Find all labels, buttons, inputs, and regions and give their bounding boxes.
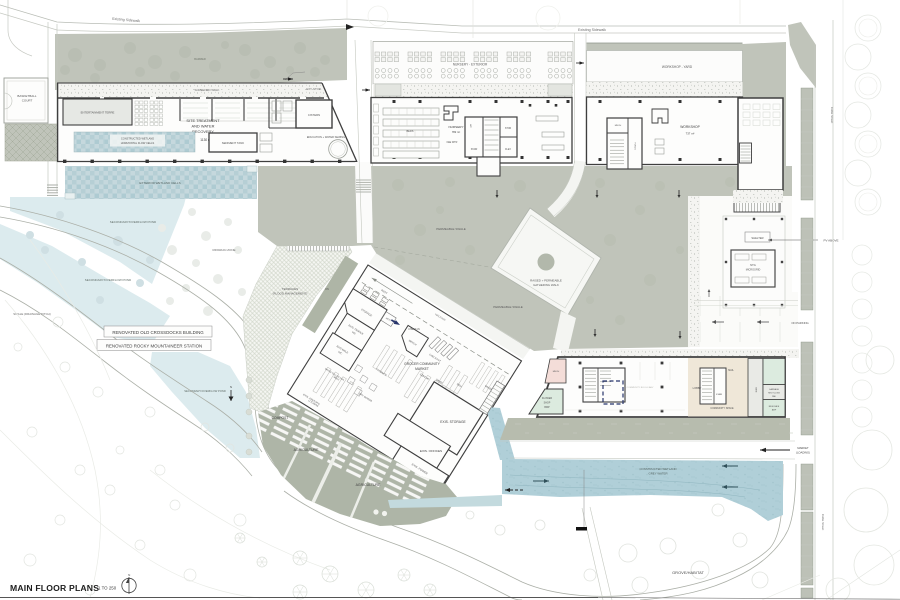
svg-text:STOR: STOR xyxy=(505,128,512,130)
svg-text:EXIS. STORAGE: EXIS. STORAGE xyxy=(440,420,466,424)
svg-text:PV ABOVE: PV ABOVE xyxy=(823,239,838,243)
svg-text:NURSERY: NURSERY xyxy=(448,125,463,129)
svg-text:MAIN FLOOR PLANS: MAIN FLOOR PLANS xyxy=(10,583,99,593)
svg-text:SECONDARY/OVERFLOW POND: SECONDARY/OVERFLOW POND xyxy=(85,278,132,282)
svg-text:Collie Street: Collie Street xyxy=(821,514,825,531)
svg-text:MICROGRID: MICROGRID xyxy=(746,269,761,272)
svg-text:GREY WATER: GREY WATER xyxy=(648,472,667,476)
svg-text:SECONDARY/OVERFLOW POND: SECONDARY/OVERFLOW POND xyxy=(110,220,157,224)
svg-text:ON PARKING: ON PARKING xyxy=(791,321,808,325)
svg-text:N: N xyxy=(128,573,130,577)
svg-text:NURSERY - EXTERIOR: NURSERY - EXTERIOR xyxy=(453,63,488,67)
svg-text:COMMUNITY BLDG 6 ABV: COMMUNITY BLDG 6 ABV xyxy=(627,386,654,389)
svg-text:MTG: MTG xyxy=(750,264,756,267)
svg-text:SWALE (DRAINAGE DITCH): SWALE (DRAINAGE DITCH) xyxy=(13,312,51,316)
svg-text:MARKET: MARKET xyxy=(797,446,809,450)
svg-text:RIPARIAN ZONE: RIPARIAN ZONE xyxy=(212,248,235,252)
svg-text:STAIR: STAIR xyxy=(716,393,723,396)
svg-text:MAIL: MAIL xyxy=(728,369,734,372)
svg-text:WC: WC xyxy=(469,124,471,128)
svg-text:EXT. STOR.: EXT. STOR. xyxy=(306,87,321,91)
svg-text:RENOVATED OLD CROSSDOCKS BUILD: RENOVATED OLD CROSSDOCKS BUILDING xyxy=(112,330,204,335)
svg-text:FLEX: FLEX xyxy=(505,149,511,151)
svg-text:Existing Sidewalk: Existing Sidewalk xyxy=(578,28,606,32)
svg-text:PERMEABLE SWALE: PERMEABLE SWALE xyxy=(436,227,466,231)
svg-text:SHELTER: SHELTER xyxy=(751,236,763,240)
svg-text:LOBBY: LOBBY xyxy=(693,386,702,390)
svg-text:MECH: MECH xyxy=(553,371,560,373)
svg-text:FEE WTR: FEE WTR xyxy=(447,141,458,144)
svg-text:DN: DN xyxy=(325,288,329,291)
svg-text:SITE TREATMENT: SITE TREATMENT xyxy=(186,118,220,123)
svg-text:TOOLS: TOOLS xyxy=(634,142,636,150)
svg-text:EXIS. OFFICES: EXIS. OFFICES xyxy=(420,449,442,453)
svg-text:PERMEABLE SWALE: PERMEABLE SWALE xyxy=(493,305,523,309)
svg-text:1 TO 250: 1 TO 250 xyxy=(98,586,117,591)
svg-text:SCREENED WALK: SCREENED WALK xyxy=(195,88,220,92)
svg-text:PAD: PAD xyxy=(772,395,777,398)
svg-text:N: N xyxy=(230,386,232,389)
svg-text:GATHERING WALK: GATHERING WALK xyxy=(533,283,559,287)
svg-text:BIKE: BIKE xyxy=(755,388,757,394)
svg-text:CONSTRUCTED WETLAND: CONSTRUCTED WETLAND xyxy=(121,137,154,141)
svg-text:737 m²: 737 m² xyxy=(686,132,695,136)
svg-text:HORIZONTAL FLOW CELLS: HORIZONTAL FLOW CELLS xyxy=(121,141,155,145)
svg-text:Collie Street: Collie Street xyxy=(830,107,834,124)
svg-text:(FLOOD MANAGEMENT): (FLOOD MANAGEMENT) xyxy=(273,292,308,296)
svg-text:BMP: BMP xyxy=(544,406,550,409)
svg-text:AGRICULTURE: AGRICULTURE xyxy=(356,483,381,487)
svg-text:COMPOST: COMPOST xyxy=(272,416,289,420)
svg-text:BEDS: BEDS xyxy=(406,129,413,133)
svg-text:RENOVATED ROCKY MOUNTAINEER ST: RENOVATED ROCKY MOUNTAINEER STATION xyxy=(106,344,202,349)
svg-text:BARRIER: BARRIER xyxy=(194,57,206,61)
svg-text:GROVE/HABITAT: GROVE/HABITAT xyxy=(672,570,704,575)
svg-text:AMP: AMP xyxy=(772,408,777,411)
svg-text:COMMUNITY SPACE: COMMUNITY SPACE xyxy=(710,407,734,410)
svg-text:CONSTRUCTED WETLAND: CONSTRUCTED WETLAND xyxy=(639,467,676,471)
svg-text:MARKET: MARKET xyxy=(415,367,429,371)
svg-text:AND WATER: AND WATER xyxy=(192,124,215,129)
svg-text:RECYCLING: RECYCLING xyxy=(768,392,780,394)
svg-text:EDUCATION + WATER SEWING: EDUCATION + WATER SEWING xyxy=(307,135,345,139)
svg-text:BASKETBALL: BASKETBALL xyxy=(17,94,37,98)
svg-text:EXTERIOR WETLAND CELLS: EXTERIOR WETLAND CELLS xyxy=(139,181,180,185)
svg-text:AGRICULTURE: AGRICULTURE xyxy=(294,448,319,452)
svg-text:CISTERN: CISTERN xyxy=(308,113,320,117)
svg-text:SHOP: SHOP xyxy=(544,401,551,404)
svg-text:ENTERTAINMENT TERRE: ENTERTAINMENT TERRE xyxy=(81,111,115,115)
svg-text:SEDIMENT TANK: SEDIMENT TANK xyxy=(222,141,245,145)
svg-text:WORKSHOP - YARD: WORKSHOP - YARD xyxy=(662,65,693,69)
svg-text:BIKE/CAFE: BIKE/CAFE xyxy=(769,405,780,408)
svg-text:782 m²: 782 m² xyxy=(452,130,460,134)
svg-text:MECH: MECH xyxy=(615,125,622,127)
svg-text:FLOWER: FLOWER xyxy=(542,397,553,400)
svg-text:TERRACES: TERRACES xyxy=(282,287,298,291)
svg-text:GROCER COMMUNITY: GROCER COMMUNITY xyxy=(404,362,441,366)
svg-text:(LOADING): (LOADING) xyxy=(796,451,810,455)
svg-text:STAIR: STAIR xyxy=(471,148,478,151)
svg-text:CHECK-IN: CHECK-IN xyxy=(408,328,420,331)
svg-text:WORKSHOP: WORKSHOP xyxy=(680,125,700,129)
svg-text:GARBAGE: GARBAGE xyxy=(769,388,780,391)
svg-text:COURT: COURT xyxy=(22,99,33,103)
